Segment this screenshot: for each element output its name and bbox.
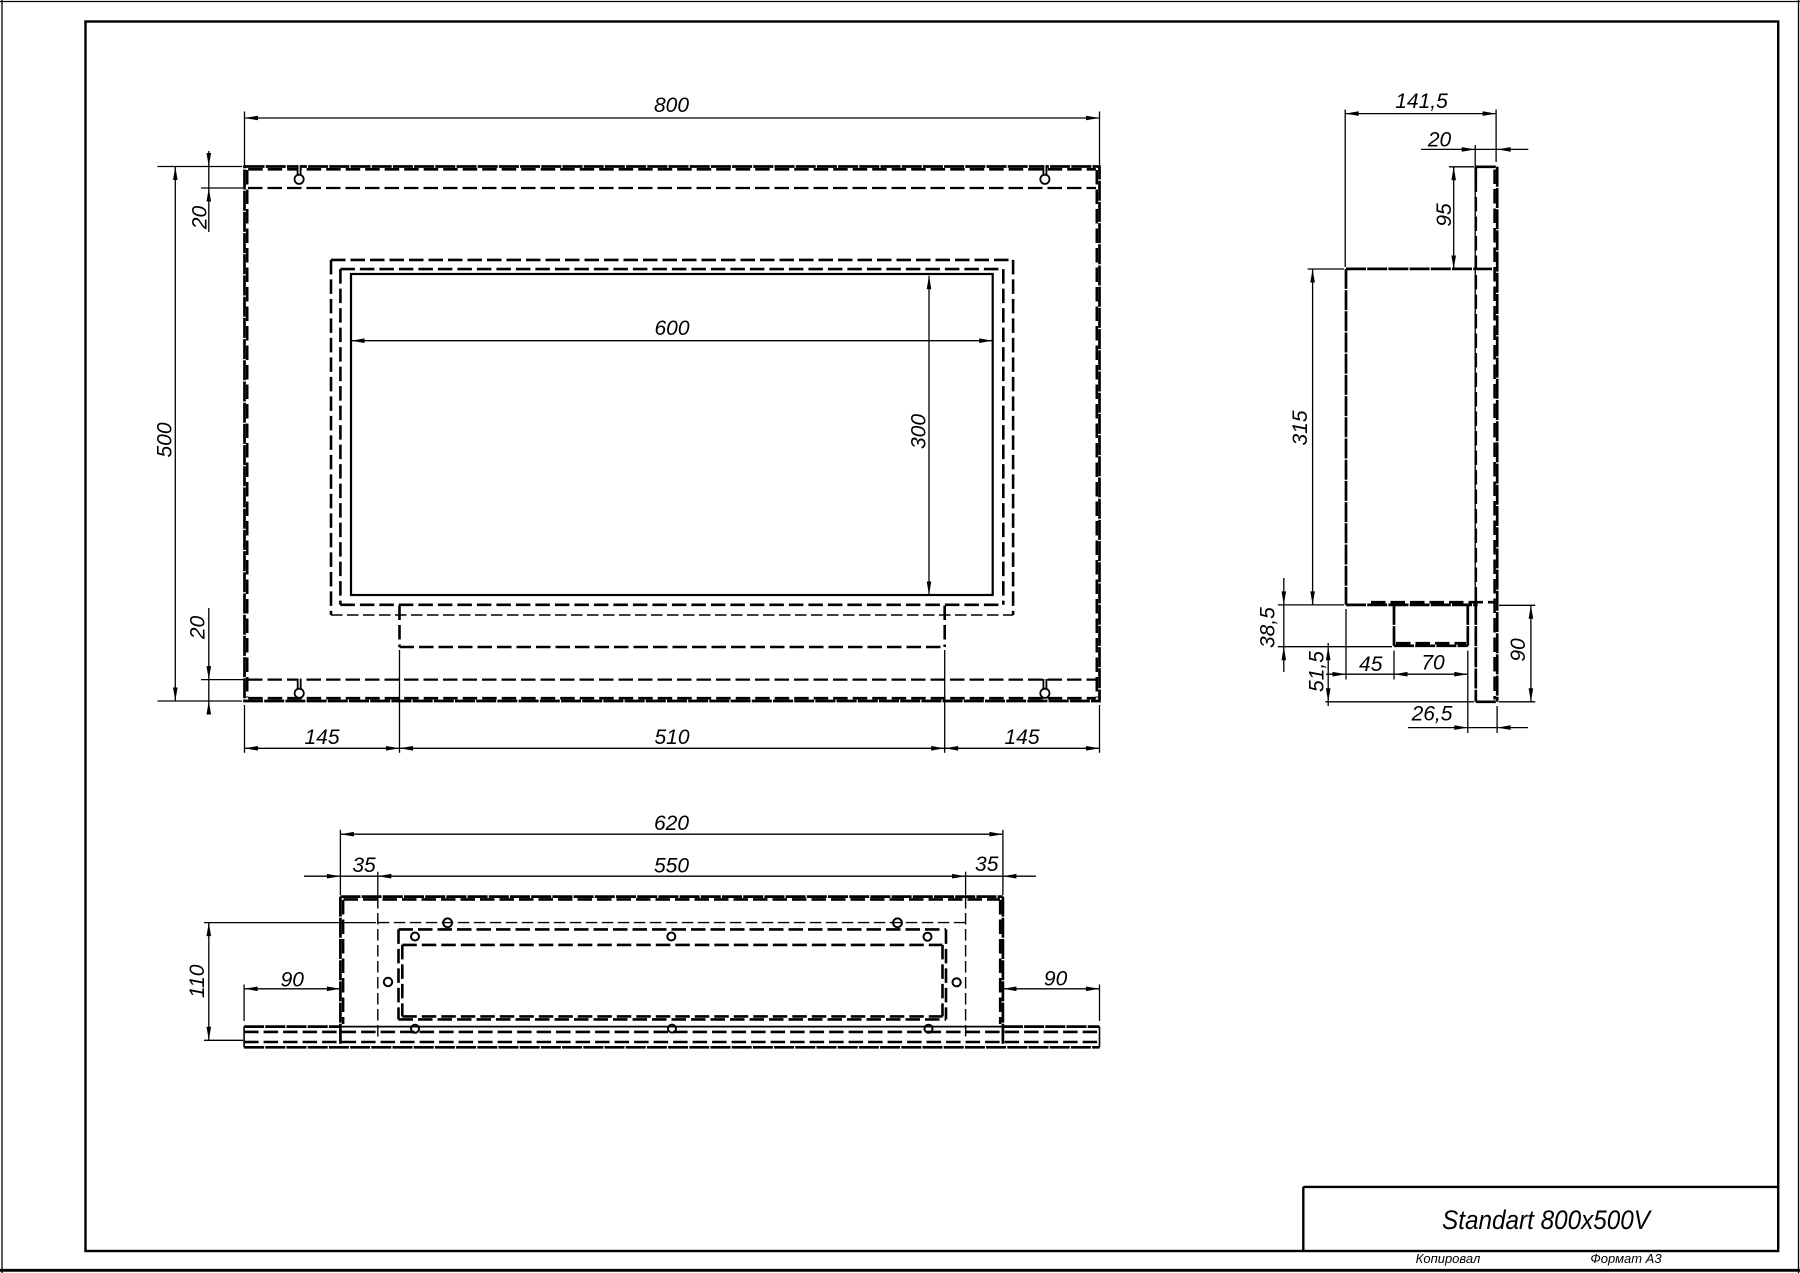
svg-text:95: 95	[1433, 203, 1456, 227]
svg-text:90: 90	[281, 969, 305, 992]
svg-text:90: 90	[1507, 638, 1530, 662]
svg-text:510: 510	[654, 726, 689, 749]
svg-text:Формат А3: Формат А3	[1590, 1251, 1662, 1266]
svg-text:45: 45	[1359, 653, 1383, 676]
svg-text:26,5: 26,5	[1411, 703, 1453, 726]
svg-text:110: 110	[186, 964, 209, 998]
svg-text:315: 315	[1289, 410, 1312, 445]
svg-text:35: 35	[975, 853, 999, 876]
svg-text:300: 300	[907, 414, 930, 449]
svg-text:500: 500	[153, 422, 176, 457]
svg-text:800: 800	[654, 94, 689, 117]
svg-text:20: 20	[1427, 129, 1452, 152]
svg-text:141,5: 141,5	[1395, 90, 1448, 113]
svg-text:620: 620	[654, 812, 689, 835]
svg-text:600: 600	[654, 317, 689, 340]
svg-text:Копировал: Копировал	[1416, 1251, 1481, 1266]
svg-text:51,5: 51,5	[1306, 651, 1329, 692]
svg-text:38,5: 38,5	[1256, 607, 1279, 648]
svg-text:20: 20	[188, 206, 211, 231]
svg-text:35: 35	[352, 854, 376, 877]
svg-text:550: 550	[654, 855, 689, 878]
svg-text:20: 20	[187, 616, 210, 641]
svg-text:90: 90	[1044, 967, 1068, 990]
svg-text:70: 70	[1421, 651, 1445, 674]
svg-text:Standart 800x500V: Standart 800x500V	[1442, 1205, 1653, 1235]
svg-text:145: 145	[304, 726, 339, 749]
svg-text:145: 145	[1004, 726, 1039, 749]
